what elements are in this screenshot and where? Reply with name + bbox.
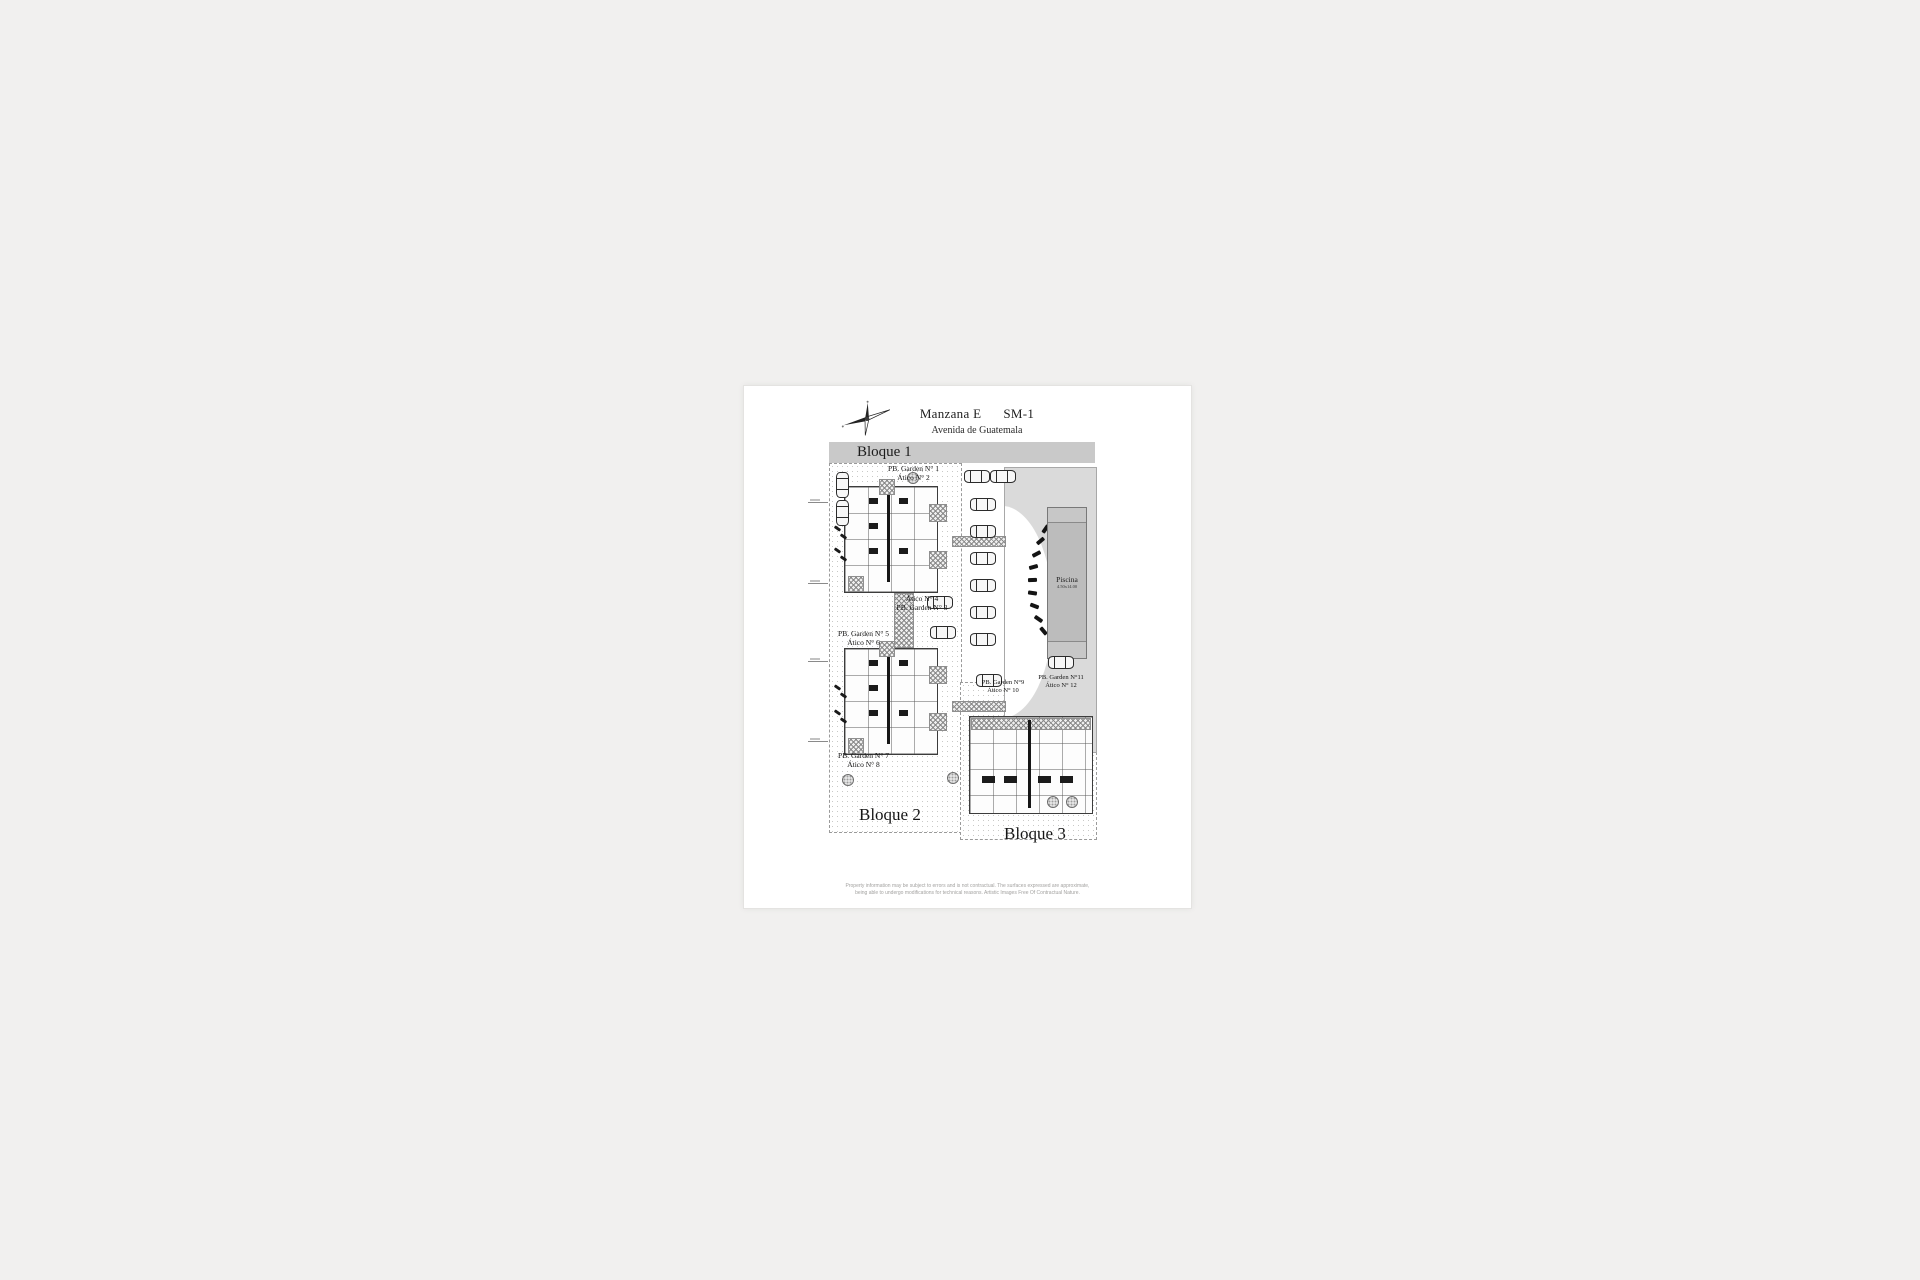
unit-label-line: Ático N° 6	[816, 639, 911, 648]
parked-car	[990, 470, 1016, 483]
bloque1-strip: Bloque 1	[829, 442, 1095, 463]
margin-marker	[808, 502, 828, 503]
terrace-hatch	[929, 713, 947, 731]
tree-icon	[1066, 796, 1078, 808]
furniture-block	[1060, 776, 1073, 783]
unit-label-4-3: Ático N° 4 PB. Garden N° 3	[877, 595, 967, 612]
disclaimer-line-2: being able to undergo modifications for …	[744, 890, 1191, 897]
furniture-block	[982, 776, 995, 783]
street-name: Avenida de Guatemala	[862, 425, 1092, 436]
tree-icon	[842, 774, 854, 786]
furniture-block	[869, 685, 878, 691]
sun-lounger	[1028, 578, 1037, 582]
bloque2-label: Bloque 2	[859, 805, 921, 825]
unit-label-line: Ático N° 8	[816, 761, 911, 770]
terrace-hatch	[929, 504, 947, 522]
building-party-wall	[887, 656, 890, 744]
tree-icon	[947, 772, 959, 784]
parked-car	[970, 498, 996, 511]
building-party-wall	[887, 494, 890, 582]
furniture-block	[899, 548, 908, 554]
bloque3-label: Bloque 3	[1004, 824, 1066, 844]
swimming-pool: Piscina 4.50x14.00	[1047, 507, 1087, 659]
parked-car	[964, 470, 990, 483]
unit-label-1-2: PB. Garden N° 1 Ático N° 2	[866, 465, 961, 482]
parked-car	[970, 579, 996, 592]
title-code: SM-1	[1003, 406, 1034, 421]
title-manzana: Manzana E	[920, 406, 982, 421]
terrace-hatch	[971, 718, 1091, 730]
furniture-block	[869, 548, 878, 554]
furniture-block	[869, 498, 878, 504]
parked-car	[930, 626, 956, 639]
pool-steps	[1048, 508, 1086, 523]
unit-label-line: Ático N° 2	[866, 474, 961, 483]
unit-label-5-6: PB. Garden N° 5 Ático N° 6	[816, 630, 911, 647]
parked-car	[1048, 656, 1074, 669]
parked-car	[836, 500, 849, 526]
margin-marker	[808, 741, 828, 742]
parked-car	[970, 525, 996, 538]
bloque1-label: Bloque 1	[857, 444, 912, 460]
furniture-block	[1038, 776, 1051, 783]
parked-car	[970, 606, 996, 619]
margin-marker	[808, 661, 828, 662]
disclaimer: Property information may be subject to e…	[744, 883, 1191, 896]
pool-label: Piscina	[1056, 575, 1078, 584]
unit-label-line: PB. Garden N°11	[1027, 674, 1095, 682]
parked-car	[970, 633, 996, 646]
parked-car	[970, 552, 996, 565]
building-party-wall	[1028, 720, 1031, 808]
walkway-hatch	[952, 701, 1006, 712]
furniture-block	[899, 660, 908, 666]
furniture-block	[869, 660, 878, 666]
unit-label-11-12: PB. Garden N°11 Ático N° 12	[1027, 674, 1095, 689]
tree-icon	[1047, 796, 1059, 808]
plan-sheet: Manzana ESM-1 Avenida de Guatemala Bloqu…	[743, 385, 1192, 909]
sheet-title: Manzana ESM-1	[862, 406, 1092, 422]
unit-label-line: Ático N° 12	[1027, 682, 1095, 690]
unit-label-line: PB. Garden N° 3	[877, 604, 967, 613]
furniture-block	[869, 710, 878, 716]
furniture-block	[899, 498, 908, 504]
parked-car	[836, 472, 849, 498]
terrace-hatch	[929, 551, 947, 569]
furniture-block	[899, 710, 908, 716]
furniture-block	[1004, 776, 1017, 783]
terrace-hatch	[929, 666, 947, 684]
pool-area: Piscina 4.50x14.00	[1004, 467, 1097, 753]
terrace-hatch	[848, 576, 864, 592]
furniture-block	[869, 523, 878, 529]
margin-marker	[808, 583, 828, 584]
pool-dimensions: 4.50x14.00	[1057, 584, 1077, 589]
unit-label-7-8: PB. Garden N° 7 Ático N° 8	[816, 752, 911, 769]
